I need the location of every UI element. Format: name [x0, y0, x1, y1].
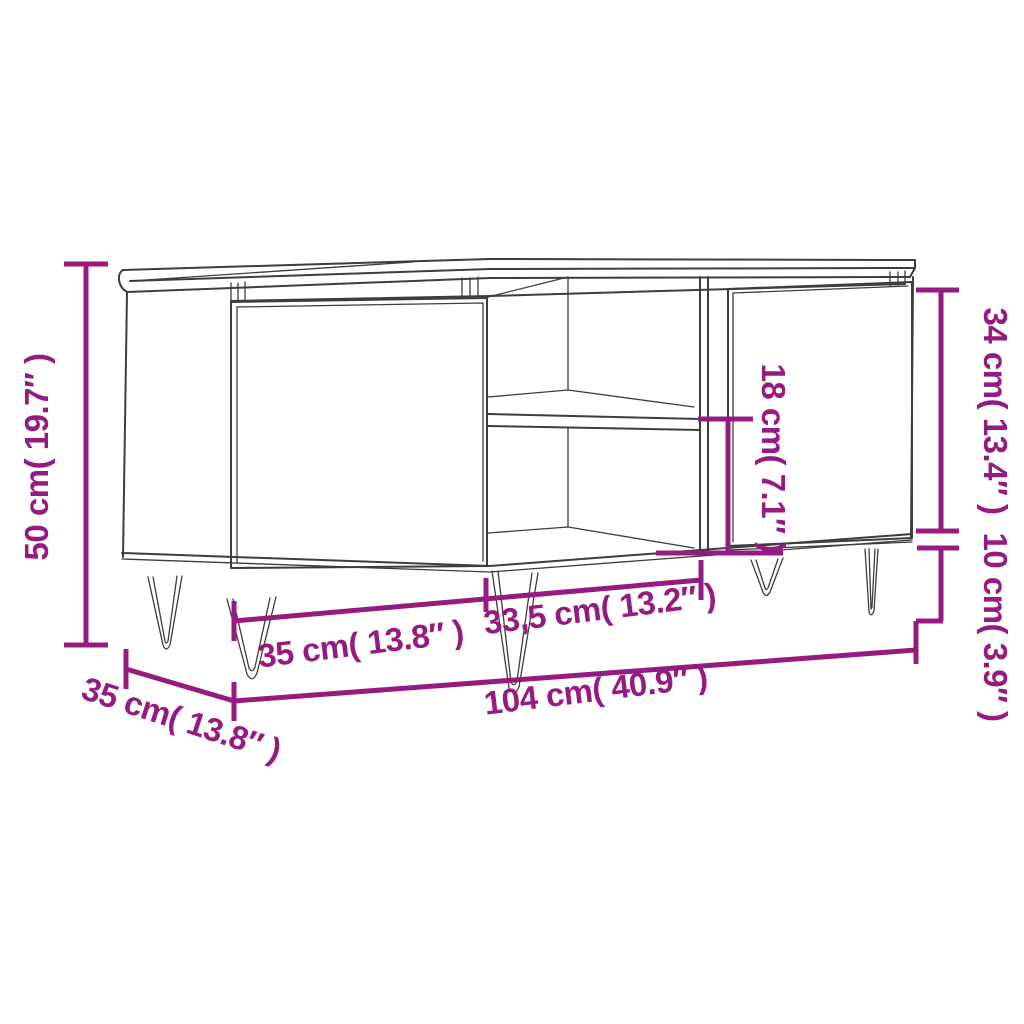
leg-front-right	[865, 549, 878, 615]
dim-leg-height	[916, 548, 959, 664]
floor-left-edge	[488, 527, 568, 533]
left-door-inner-line	[237, 303, 483, 563]
left-door-outline	[231, 298, 487, 568]
shelf-top-back-edge	[568, 390, 694, 407]
dimension-lines	[64, 264, 959, 721]
label-middle-section-width: 33,5 cm( 13.2″ )	[481, 576, 717, 641]
shelf-front-top-edge	[488, 414, 700, 419]
label-overall-width: 104 cm( 40.9″ )	[482, 658, 710, 722]
label-door-height: 34 cm( 13.4″ )	[977, 308, 1014, 515]
cabinet-body	[122, 271, 913, 572]
open-shelf-compartment	[488, 277, 708, 552]
bottom-edge-upper	[122, 534, 912, 566]
divider-front-edges	[700, 277, 708, 552]
leg-rear-left	[148, 576, 182, 649]
leg-rear-center	[751, 558, 783, 596]
shelf-top-left-edge	[488, 390, 568, 397]
floor-back-edge	[568, 527, 694, 548]
top-panel-left-cap	[119, 270, 127, 292]
dimension-diagram: 50 cm( 19.7″ ) 34 cm( 13.4″ ) 10 cm( 3.9…	[0, 0, 1024, 1024]
shelf-front-bottom-edge	[488, 426, 700, 430]
label-shelf-opening: 18 cm( 7.1″ )	[755, 363, 792, 552]
top-panel-front-top-edge	[130, 268, 915, 281]
label-left-door-width: 35 cm( 13.8″ )	[256, 613, 466, 675]
label-leg-height: 10 cm( 3.9″ )	[977, 532, 1014, 721]
apron-end-marks-left-corner	[231, 282, 245, 302]
left-door	[231, 298, 487, 568]
left-side-edge	[123, 292, 127, 557]
diagram-canvas: 50 cm( 19.7″ ) 34 cm( 13.4″ ) 10 cm( 3.9…	[0, 0, 1024, 1024]
dim-door-height	[916, 290, 959, 531]
dim-overall-height	[64, 264, 108, 645]
label-overall-height: 50 cm( 19.7″ )	[18, 354, 55, 561]
